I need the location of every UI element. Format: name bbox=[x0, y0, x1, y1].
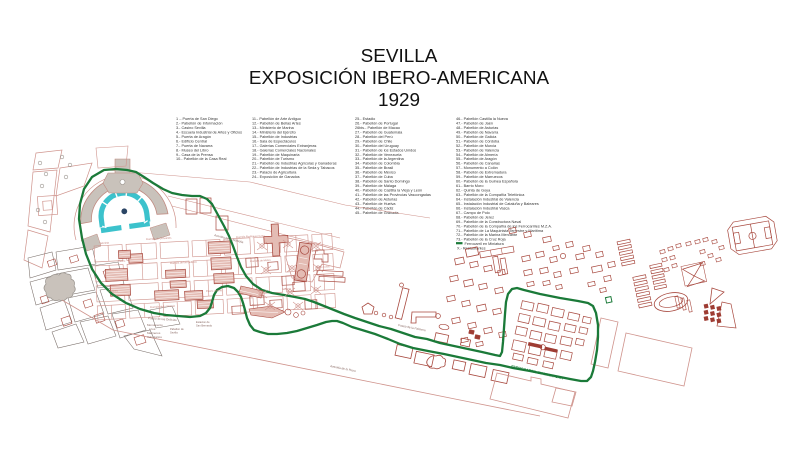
svg-text:41.- Pabellón de las Provincia: 41.- Pabellón de las Provincias Vasconga… bbox=[355, 193, 431, 197]
svg-text:25.- Estadio: 25.- Estadio bbox=[355, 117, 375, 121]
svg-text:59.- Pabellón de Marruecos: 59.- Pabellón de Marruecos bbox=[456, 175, 503, 179]
svg-text:57.- Monumento a Colón: 57.- Monumento a Colón bbox=[456, 166, 498, 170]
svg-text:30.- Pabellón del Uruguay: 30.- Pabellón del Uruguay bbox=[355, 144, 399, 148]
svg-text:54.- Pabellón de Almería: 54.- Pabellón de Almería bbox=[456, 153, 498, 157]
svg-text:47.- Pabellón de Jaén: 47.- Pabellón de Jaén bbox=[456, 122, 493, 126]
svg-text:21.- Pabellón de Industrias Ag: 21.- Pabellón de Industrias Agrícolas y … bbox=[252, 162, 337, 166]
svg-text:55.- Pabellón de Aragón: 55.- Pabellón de Aragón bbox=[456, 157, 497, 161]
svg-text:SEVILLA: SEVILLA bbox=[361, 46, 438, 67]
svg-text:Glorieta: Glorieta bbox=[100, 240, 110, 244]
svg-text:Voluntarios: Voluntarios bbox=[147, 335, 162, 339]
svg-text:Maria Luisa: Maria Luisa bbox=[316, 264, 330, 269]
svg-text:58.- Pabellón de Extremadura: 58.- Pabellón de Extremadura bbox=[456, 171, 507, 175]
svg-text:32.- Pabellón de Venezuela: 32.- Pabellón de Venezuela bbox=[355, 153, 402, 157]
svg-text:60.- Pabellón de la Guinea Esp: 60.- Pabellón de la Guinea Española bbox=[456, 180, 519, 184]
svg-text:Estacion de: Estacion de bbox=[196, 320, 210, 324]
svg-text:17.- Galerías Comerciales Extr: 17.- Galerías Comerciales Extranjeras bbox=[252, 144, 316, 148]
svg-text:Glorieta: Glorieta bbox=[282, 286, 292, 290]
svg-text:33.- Pabellón de la Argentina: 33.- Pabellón de la Argentina bbox=[355, 157, 405, 161]
svg-text:38.- Pabellón de Santo Domingo: 38.- Pabellón de Santo Domingo bbox=[355, 180, 410, 184]
svg-text:63.- Pabellón de la Compañía T: 63.- Pabellón de la Compañía Telefónica bbox=[456, 193, 525, 197]
svg-text:50.- Pabellón de Galicia: 50.- Pabellón de Galicia bbox=[456, 135, 497, 139]
svg-text:29.- Pabellón de Chile: 29.- Pabellón de Chile bbox=[355, 139, 392, 143]
svg-text:12.- Pabellón de Bellas Artes: 12.- Pabellón de Bellas Artes bbox=[252, 122, 301, 126]
svg-text:66.- Instalación Industrial Va: 66.- Instalación Industrial Vasca bbox=[456, 206, 510, 210]
svg-text:40.- Pabellón de Castilla la V: 40.- Pabellón de Castilla la Vieja y Leó… bbox=[355, 189, 422, 193]
svg-text:16.- Sala de Espectáculos: 16.- Sala de Espectáculos bbox=[252, 139, 296, 143]
svg-text:39.- Pabellón de Málaga: 39.- Pabellón de Málaga bbox=[355, 184, 397, 188]
svg-text:5.- Puerta de Aragón: 5.- Puerta de Aragón bbox=[176, 135, 211, 139]
svg-text:68.- Pabellón de Jerez: 68.- Pabellón de Jerez bbox=[456, 215, 494, 219]
svg-text:San Bernardo: San Bernardo bbox=[196, 324, 213, 328]
svg-text:19.- Pabellón de Maquinaria: 19.- Pabellón de Maquinaria bbox=[252, 153, 300, 157]
svg-text:EXPOSICIÓN IBERO-AMERICANA: EXPOSICIÓN IBERO-AMERICANA bbox=[249, 67, 550, 89]
svg-text:Jardines: Jardines bbox=[108, 288, 119, 293]
svg-text:24.- Exposición de Ganados: 24.- Exposición de Ganados bbox=[252, 175, 300, 179]
svg-text:42.- Pabellón de Asturias: 42.- Pabellón de Asturias bbox=[355, 198, 397, 202]
svg-text:31.- Pabellón de los Estados U: 31.- Pabellón de los Estados Unidos bbox=[355, 148, 416, 152]
svg-text:36.- Pabellón de México: 36.- Pabellón de México bbox=[355, 171, 396, 175]
svg-text:X.- Restaurantes: X.- Restaurantes bbox=[457, 247, 486, 251]
svg-text:61.- Barrio Moro: 61.- Barrio Moro bbox=[456, 184, 483, 188]
svg-text:Paseo: Paseo bbox=[118, 259, 126, 263]
svg-text:Paseo: Paseo bbox=[252, 303, 260, 307]
svg-text:23.- Palacio de Agricultura: 23.- Palacio de Agricultura bbox=[252, 171, 297, 175]
svg-text:43.- Pabellón de Huelva: 43.- Pabellón de Huelva bbox=[355, 202, 396, 206]
svg-text:53.- Pabellón de Valencia: 53.- Pabellón de Valencia bbox=[456, 148, 500, 152]
svg-text:18.- Galerías Comerciales Naci: 18.- Galerías Comerciales Nacionales bbox=[252, 148, 316, 152]
svg-text:52.- Pabellón de Murcia: 52.- Pabellón de Murcia bbox=[456, 144, 497, 148]
svg-text:2.- Pabellón de Información: 2.- Pabellón de Información bbox=[176, 122, 222, 126]
svg-text:70.- Pabellón de la Compañía d: 70.- Pabellón de la Compañía de los Ferr… bbox=[456, 224, 552, 228]
svg-text:27.- Pabellón de Guatemala: 27.- Pabellón de Guatemala bbox=[355, 130, 403, 134]
svg-text:51.- Pabellón de Córdoba: 51.- Pabellón de Córdoba bbox=[456, 139, 500, 143]
svg-text:8.- Museo del Libro: 8.- Museo del Libro bbox=[176, 148, 209, 152]
svg-text:26.- Pabellón de Portugal: 26.- Pabellón de Portugal bbox=[355, 122, 398, 126]
svg-text:46.- Pabellón Castilla la Nuev: 46.- Pabellón Castilla la Nueva bbox=[456, 117, 509, 121]
svg-text:20.- Pabellón de Turismo: 20.- Pabellón de Turismo bbox=[252, 157, 294, 161]
svg-text:49.- Pabellón de Navarra: 49.- Pabellón de Navarra bbox=[456, 130, 499, 134]
svg-text:1 .- Puerta de San Diego: 1 .- Puerta de San Diego bbox=[176, 117, 218, 121]
svg-text:3.- Casino Sevilla: 3.- Casino Sevilla bbox=[176, 126, 206, 130]
svg-text:Parque: Parque bbox=[310, 249, 319, 253]
svg-text:13.- Ministerio de Marina: 13.- Ministerio de Marina bbox=[252, 126, 295, 130]
svg-text:67.- Campo de Polo: 67.- Campo de Polo bbox=[456, 211, 490, 215]
svg-text:65.- Instalación Industrial de: 65.- Instalación Industrial de Cataluña … bbox=[456, 202, 539, 206]
svg-text:7.- Puerta de Navarra: 7.- Puerta de Navarra bbox=[176, 144, 213, 148]
svg-text:15.- Pabellón de Industrias: 15.- Pabellón de Industrias bbox=[252, 135, 297, 139]
svg-text:44.- Pabellón de Cádiz: 44.- Pabellón de Cádiz bbox=[355, 206, 394, 210]
svg-text:10.- Pabellón de la Casa Real: 10.- Pabellón de la Casa Real bbox=[176, 157, 227, 161]
svg-text:45.- Pabellón de Granada: 45.- Pabellón de Granada bbox=[355, 211, 399, 215]
svg-text:73.- Pabellón de la Cruz Roja: 73.- Pabellón de la Cruz Roja bbox=[456, 238, 506, 242]
svg-text:62.- Quinta de Goya: 62.- Quinta de Goya bbox=[456, 189, 491, 193]
svg-text:56.- Pabellón de Canarias: 56.- Pabellón de Canarias bbox=[456, 162, 500, 166]
svg-text:Ferrocarril en Miniatura: Ferrocarril en Miniatura bbox=[465, 242, 505, 246]
svg-text:14.- Ministerio del Ejército: 14.- Ministerio del Ejército bbox=[252, 130, 296, 134]
svg-text:1929: 1929 bbox=[378, 90, 420, 111]
svg-text:35.- Pabellón de Brasil: 35.- Pabellón de Brasil bbox=[355, 166, 393, 170]
svg-text:26bis.- Pabellón de Macao: 26bis.- Pabellón de Macao bbox=[355, 126, 400, 130]
svg-text:34.- Pabellón de Colombia: 34.- Pabellón de Colombia bbox=[355, 162, 401, 166]
svg-text:11.- Pabellón de Arte Antiguo: 11.- Pabellón de Arte Antiguo bbox=[252, 117, 301, 121]
svg-text:64.- Instalación Industrial de: 64.- Instalación Industrial de Valencia bbox=[456, 198, 520, 202]
svg-text:28.- Pabellón del Perú: 28.- Pabellón del Perú bbox=[355, 135, 393, 139]
svg-text:22.- Pabellón de Industrias de: 22.- Pabellón de Industrias de la Seda y… bbox=[252, 166, 335, 170]
svg-text:Pabellon de: Pabellon de bbox=[170, 327, 184, 331]
svg-text:37.- Pabellón de Cuba: 37.- Pabellón de Cuba bbox=[355, 175, 394, 179]
svg-text:Sevilla: Sevilla bbox=[170, 331, 178, 335]
svg-text:72.- Pabellón de la Marina Mer: 72.- Pabellón de la Marina Mercante bbox=[456, 233, 517, 237]
svg-text:69.- Pabellón de la Constructo: 69.- Pabellón de la Constructora Naval bbox=[456, 220, 521, 224]
svg-text:4.- Escuela Industrial de Arte: 4.- Escuela Industrial de Artes y Oficio… bbox=[176, 130, 242, 134]
svg-text:48.- Pabellón de Asturias: 48.- Pabellón de Asturias bbox=[456, 126, 498, 130]
svg-text:6.- Edificio Central: 6.- Edificio Central bbox=[176, 139, 207, 143]
svg-text:9.- Casa de la Prensa: 9.- Casa de la Prensa bbox=[176, 153, 214, 157]
